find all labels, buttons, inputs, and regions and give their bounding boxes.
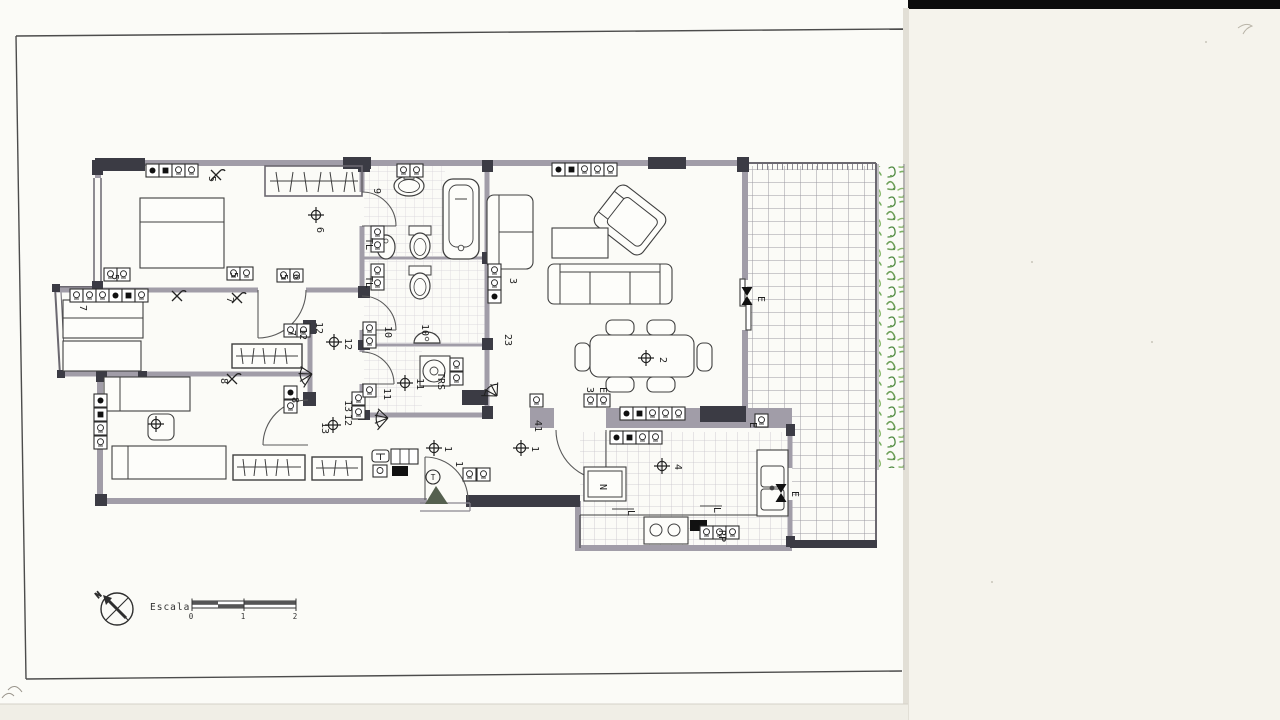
room-circuit-label: 2 xyxy=(657,357,668,363)
circuit-label: 10 xyxy=(382,326,393,338)
closet-hangers-3 xyxy=(233,455,362,480)
scale-caption: Escala xyxy=(150,602,190,613)
scale-tick: 2 xyxy=(293,612,298,621)
room-circuit-label: 6 xyxy=(314,227,325,233)
appliance-label: L xyxy=(625,510,636,516)
fridge-label: N xyxy=(597,484,608,490)
terrace-tile-floor-lower xyxy=(792,428,875,543)
towel-rail-label: TL xyxy=(363,276,374,288)
coffee-table xyxy=(552,228,608,258)
bedroom2-bed-b xyxy=(112,446,226,479)
laundry-label: TRS xyxy=(435,372,446,390)
bedroom1-bed xyxy=(140,198,224,268)
circuit-label: 1 xyxy=(529,446,540,452)
circuit-label: 8 xyxy=(218,378,229,384)
kitchen-door-opening xyxy=(554,406,606,430)
circuit-label: 11 xyxy=(414,378,425,390)
circuit-label: 5 xyxy=(278,274,289,280)
thermostat-label: T xyxy=(431,473,436,482)
floor-plan-scan: 5 5 5 6 7 7 5 6 9 TL TL 10 10 23 3 11 11… xyxy=(0,0,1280,720)
scale-tick: 0 xyxy=(189,612,194,621)
circuit-label: 11 xyxy=(381,388,392,400)
bedroom2-bed-a xyxy=(104,377,190,411)
sink-tap xyxy=(770,486,775,491)
circuit-label: 41 xyxy=(532,420,543,432)
terrace-south-dark-wall xyxy=(790,540,877,548)
circuit-label: 23 xyxy=(502,334,513,346)
study-cabinet xyxy=(63,300,143,338)
circuit-label: 7 xyxy=(77,305,88,311)
top-black-strip xyxy=(906,0,1280,9)
circuit-label: 3 xyxy=(584,387,595,393)
dining-chair xyxy=(606,320,634,335)
south-exterior-dark-wall xyxy=(466,495,580,507)
appliance-label: RP xyxy=(716,530,727,542)
sink-counter xyxy=(757,450,788,516)
circuit-label: 12 xyxy=(342,338,353,350)
circuit-label: 10 xyxy=(419,324,430,336)
shower-base xyxy=(462,390,488,405)
towel-rail-label: TL xyxy=(363,238,374,250)
circuit-label: 5 xyxy=(206,176,217,182)
living-sofa-3seat xyxy=(548,264,672,304)
circuit-label: 5 xyxy=(228,272,239,278)
appliance-label: L xyxy=(711,507,722,513)
circuit-label: 7 xyxy=(224,297,235,303)
circuit-label: 5 xyxy=(109,274,120,280)
circuit-label: 7 xyxy=(286,330,297,336)
dining-chair xyxy=(647,320,675,335)
circuit-label: 1 xyxy=(442,446,453,452)
scale-tick: 1 xyxy=(241,612,246,621)
stove xyxy=(644,517,688,544)
dining-chair xyxy=(606,377,634,392)
terrace-planter xyxy=(878,164,904,470)
terrace-top-hatch xyxy=(755,163,875,170)
emergency-label: E xyxy=(789,491,800,497)
emergency-label: E xyxy=(755,296,766,302)
dining-chair xyxy=(575,343,590,371)
circuit-label: 13 xyxy=(342,400,353,412)
circuit-label: 3 xyxy=(507,278,518,284)
room-circuit-label: 9 xyxy=(371,188,382,194)
room-circuit-label: 4 xyxy=(672,464,683,470)
dining-chair xyxy=(697,343,712,371)
closet-hangers-2 xyxy=(232,344,302,368)
dining-chair xyxy=(647,377,675,392)
circuit-label: 8 xyxy=(289,397,300,403)
emergency-label: E xyxy=(597,387,608,393)
circuit-label: 6 xyxy=(290,274,301,280)
laundry-tile-floor xyxy=(364,347,422,413)
emergency-label: E xyxy=(747,422,758,428)
circuit-label: 12 xyxy=(297,328,308,340)
circuit-label: 12 xyxy=(342,414,353,426)
circuit-label: 12 xyxy=(313,322,324,334)
circuit-label: 1 xyxy=(453,461,464,467)
circuit-label: 13 xyxy=(319,422,330,434)
study-desk xyxy=(63,341,141,371)
scanner-bottom-strip xyxy=(0,704,908,720)
